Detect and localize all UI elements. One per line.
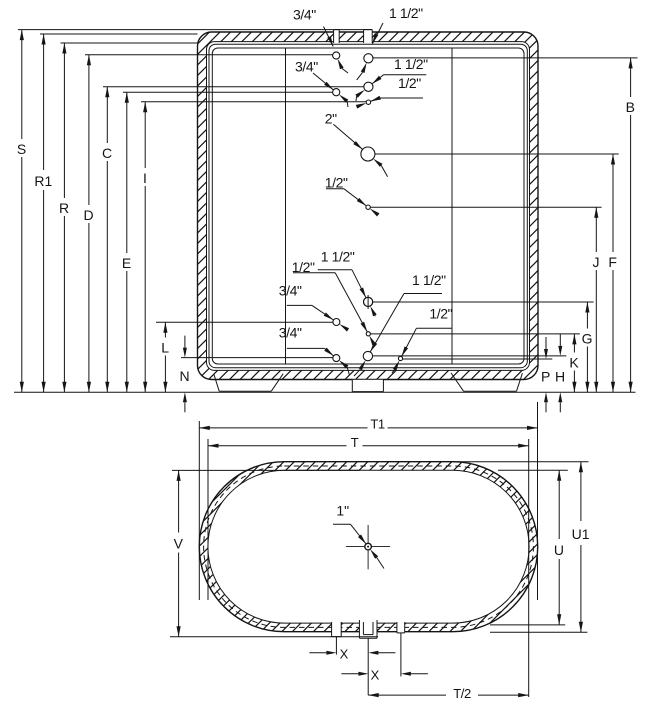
svg-text:T/2: T/2: [453, 686, 471, 701]
svg-text:R1: R1: [34, 173, 52, 189]
svg-text:1/2": 1/2": [325, 175, 348, 191]
svg-text:E: E: [122, 255, 131, 271]
svg-text:F: F: [608, 254, 617, 270]
svg-text:L: L: [161, 340, 169, 356]
svg-text:K: K: [569, 355, 579, 371]
svg-text:3/4": 3/4": [295, 59, 318, 75]
svg-text:3/4": 3/4": [279, 282, 302, 298]
svg-text:V: V: [174, 536, 184, 552]
svg-text:C: C: [102, 145, 112, 161]
svg-text:D: D: [84, 207, 94, 223]
svg-text:P: P: [541, 369, 550, 385]
svg-text:U: U: [554, 542, 564, 558]
svg-text:1/2": 1/2": [292, 259, 315, 275]
svg-text:1 1/2": 1 1/2": [389, 5, 423, 21]
svg-text:1 1/2": 1 1/2": [394, 56, 428, 72]
svg-text:1/2": 1/2": [429, 306, 452, 322]
svg-text:3/4": 3/4": [293, 7, 316, 23]
svg-text:1/2": 1/2": [398, 75, 421, 91]
svg-text:S: S: [17, 141, 26, 157]
svg-text:H: H: [555, 369, 565, 385]
svg-text:1 1/2": 1 1/2": [412, 272, 446, 288]
svg-text:X: X: [340, 647, 349, 662]
svg-text:T: T: [351, 435, 359, 450]
svg-text:G: G: [582, 331, 593, 347]
svg-text:B: B: [626, 99, 635, 115]
svg-text:I: I: [143, 170, 147, 186]
svg-text:T1: T1: [370, 416, 385, 431]
svg-text:X: X: [371, 668, 380, 683]
svg-text:2": 2": [325, 111, 337, 127]
svg-text:U1: U1: [572, 526, 590, 542]
svg-text:3/4": 3/4": [279, 324, 302, 340]
svg-text:1 1/2": 1 1/2": [321, 249, 355, 265]
svg-text:1": 1": [336, 503, 349, 519]
svg-text:R: R: [59, 200, 69, 216]
svg-text:N: N: [180, 368, 190, 384]
svg-text:J: J: [593, 254, 600, 270]
